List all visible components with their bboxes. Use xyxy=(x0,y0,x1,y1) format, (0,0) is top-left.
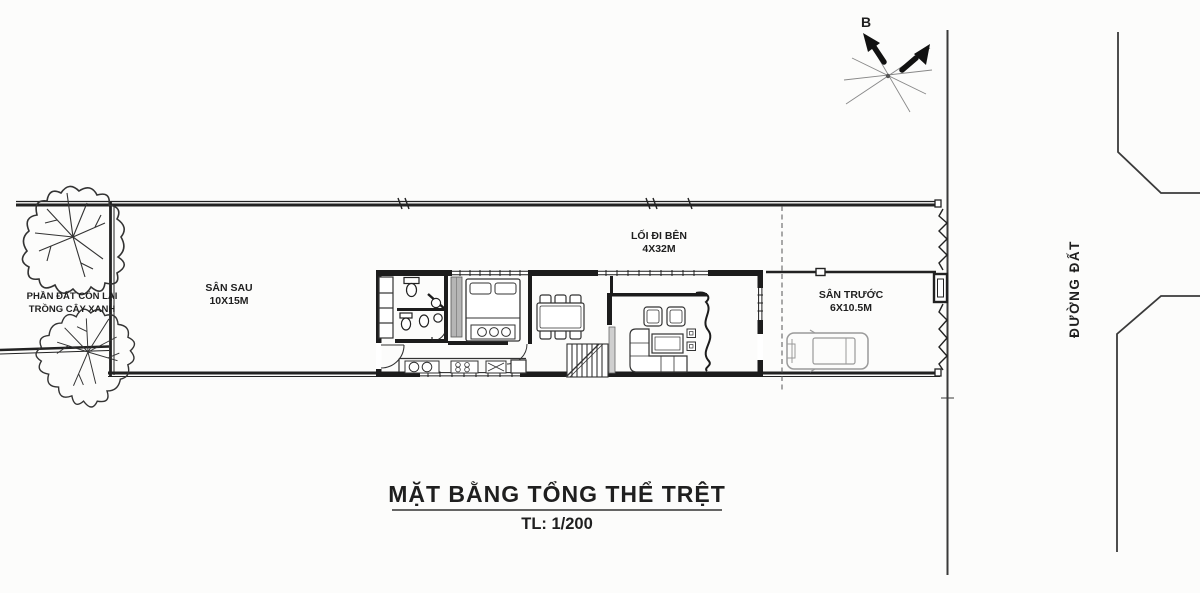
kitchen xyxy=(399,359,526,374)
armchair xyxy=(667,307,685,326)
green-area: PHẦN ĐẤT CÒN LẠI TRỒNG CÂY XANH xyxy=(21,186,151,419)
fridge xyxy=(511,360,526,373)
wall-right xyxy=(758,270,764,377)
back-door xyxy=(381,345,404,368)
back-door-opening xyxy=(376,343,382,369)
closet xyxy=(379,277,393,338)
side-walkway-label: LỐI ĐI BÊN xyxy=(631,228,687,242)
green-area-label-1: PHẦN ĐẤT CÒN LẠI xyxy=(27,290,118,302)
north-label: B xyxy=(861,14,871,30)
green-area-label-2: TRỒNG CÂY XANH xyxy=(29,303,116,315)
bedroom xyxy=(451,277,527,364)
front-yard-fence xyxy=(766,269,936,276)
stairs xyxy=(566,344,608,377)
dining-set xyxy=(537,295,584,339)
bed xyxy=(466,279,520,341)
front-yard-label: SÂN TRƯỚC xyxy=(819,288,884,301)
car xyxy=(787,330,868,372)
road-edge-top xyxy=(1118,32,1200,193)
drawing-title: MẶT BẰNG TỔNG THỂ TRỆT xyxy=(388,480,726,507)
north-compass: B xyxy=(844,14,932,112)
back-yard-label: SÂN SAU xyxy=(205,281,252,294)
side-walkway-size: 4X32M xyxy=(642,243,676,255)
stove xyxy=(451,361,478,373)
back-yard-size: 10X15M xyxy=(209,295,248,307)
front-yard-size: 6X10.5M xyxy=(830,302,872,314)
living-room xyxy=(630,307,696,372)
gate xyxy=(934,274,947,302)
road-edge-bottom xyxy=(1117,296,1200,552)
site-plan-drawing: B xyxy=(0,0,1200,593)
drawing-scale: TL: 1/200 xyxy=(521,515,593,533)
tv-cabinet xyxy=(609,327,615,373)
compass-center xyxy=(886,74,890,78)
street-fence xyxy=(934,209,947,370)
north-arrow-icon xyxy=(863,33,884,62)
house xyxy=(376,270,763,377)
secondary-arrow-icon xyxy=(902,44,930,70)
title-block: MẶT BẰNG TỔNG THỂ TRỆT TL: 1/200 xyxy=(388,480,726,533)
plan-canvas: B xyxy=(0,0,1200,593)
curved-wall xyxy=(696,293,710,371)
cooktop xyxy=(486,361,506,373)
tree-icon xyxy=(22,186,124,294)
road-label: ĐƯỜNG ĐẤT xyxy=(1067,240,1082,338)
front-door-opening xyxy=(758,334,764,360)
armchair xyxy=(644,307,662,326)
